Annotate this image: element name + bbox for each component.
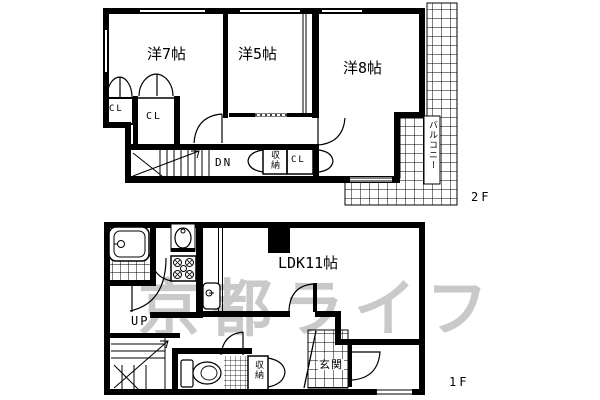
staircase-down: [133, 150, 209, 176]
storage-2f-label: 収納: [269, 150, 278, 170]
toilet-floor: [224, 356, 248, 390]
floor1-walls: [104, 222, 425, 395]
stairs-up-label: UP: [131, 315, 149, 327]
entrance-label: 玄関: [318, 359, 344, 370]
closet-label-small: CL: [109, 105, 124, 114]
storage-1f-label: 収納: [253, 360, 262, 380]
kitchen-sink-icon: [203, 283, 220, 309]
closet-swing-doors: [107, 74, 173, 97]
balcony-label: バルコニー: [427, 120, 436, 170]
closet-label-main: CL: [146, 112, 162, 122]
floor1-label: 1F: [449, 376, 469, 388]
toilet-icon: [181, 360, 221, 387]
bathtub-icon: [109, 227, 149, 261]
floor2-walls: [103, 8, 425, 183]
closet-label-hall: CL: [291, 156, 306, 165]
washbasin-icon: [171, 224, 195, 252]
room-label-west5: 洋5帖: [238, 47, 277, 62]
entry-step: [377, 389, 412, 395]
floor2-label: 2F: [471, 191, 491, 203]
floor-1-plan: [104, 222, 425, 395]
floor2-windows: [104, 9, 392, 182]
room-label-ldk: LDK11帖: [278, 256, 338, 271]
stairs-down-label: DN: [215, 157, 232, 168]
laundry-pan-icon: [171, 256, 196, 281]
floor2-door-arcs: [194, 114, 345, 145]
room-label-west7: 洋7帖: [147, 47, 186, 62]
staircase-up: [111, 338, 168, 390]
floor-2-plan: [103, 3, 457, 205]
room-label-west8: 洋8帖: [343, 61, 382, 76]
floor-plan-drawing: [0, 0, 600, 400]
floor-plan-page: 京都ライフ: [0, 0, 600, 400]
